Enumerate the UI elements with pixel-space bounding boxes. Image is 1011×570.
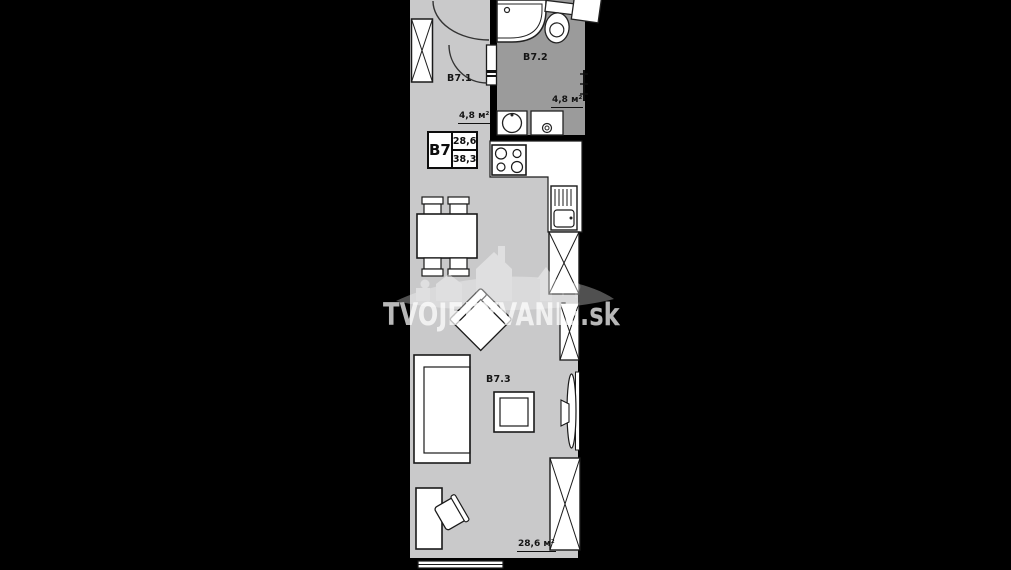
floorplan-drawing: [0, 0, 1011, 570]
dining-chair: [422, 197, 443, 215]
bedroom-wardrobe: [550, 458, 580, 550]
bathroom-shelf: [571, 0, 601, 23]
room-label-hall: B7.1: [447, 74, 472, 84]
washing-machine-icon: [531, 111, 563, 135]
door-handle-icon: [487, 70, 496, 73]
sofa-icon: [414, 355, 470, 463]
coffee-table-icon: [494, 392, 534, 432]
kitchen-sink-icon: [551, 186, 577, 230]
room-label-bathroom: B7.2: [523, 53, 548, 63]
room-label-living: B7.3: [486, 375, 511, 385]
area-label-hall: 4,8 м²: [458, 112, 490, 124]
dining-chair: [448, 197, 469, 215]
unit-number: B7: [429, 133, 453, 167]
floorplan-canvas: B7.1 B7.2 B7.3 4,8 м² 4,8 м² 28,6 м² B7 …: [0, 0, 1011, 570]
washbasin-icon: [497, 111, 527, 135]
desk: [416, 488, 442, 549]
kitchen-tall-cabinet: [549, 232, 579, 294]
dining-chair: [422, 258, 443, 276]
window-icon: [418, 561, 503, 568]
bathroom-door-leaf: [487, 45, 497, 85]
stove-icon: [492, 145, 526, 175]
door-handle-icon: [487, 75, 496, 77]
unit-area-top: 28,6: [453, 133, 476, 151]
living-wardrobe: [560, 303, 579, 360]
hall-wardrobe: [412, 19, 433, 82]
dining-chair: [448, 258, 469, 276]
unit-area-bottom: 38,3: [453, 151, 476, 167]
unit-info-card: B7 28,6 38,3: [427, 131, 478, 169]
area-label-bathroom: 4,8 м²: [551, 96, 583, 108]
area-label-living: 28,6 м²: [517, 540, 556, 552]
dining-table: [417, 214, 477, 258]
